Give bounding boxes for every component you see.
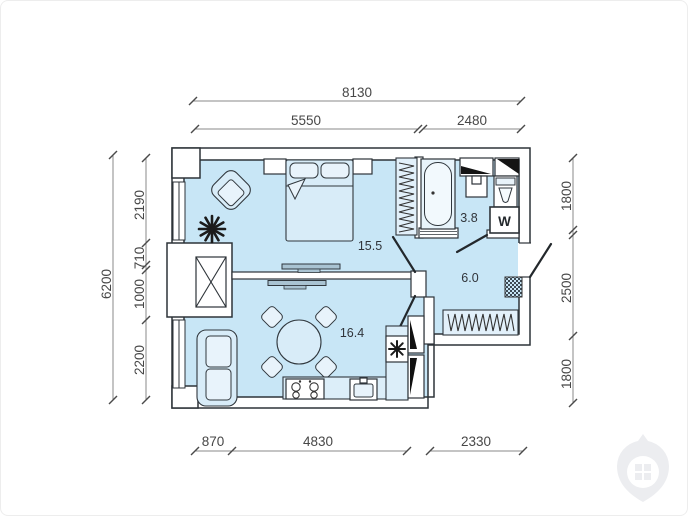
- kitchen-sink: [350, 378, 377, 400]
- shaft: [167, 243, 232, 317]
- toilet: [494, 176, 517, 207]
- dim-label: 5550: [291, 113, 321, 128]
- dim-label: 8130: [342, 85, 372, 100]
- dim-label: 870: [202, 434, 225, 449]
- sofa: [197, 330, 237, 406]
- dim-label: 2330: [461, 434, 491, 449]
- floor-plan: W: [0, 0, 688, 516]
- hallway-area-label: 6.0: [461, 271, 478, 285]
- dim-label: 4830: [303, 434, 333, 449]
- bath-cabinet: [460, 158, 493, 176]
- dim-label: 2480: [457, 113, 487, 128]
- dim-label: 1800: [559, 181, 574, 211]
- dim-label: 2200: [132, 345, 147, 375]
- bath-cabinet: [495, 158, 519, 176]
- partition-bedroom-living: [232, 272, 413, 279]
- tall-cabinet: [408, 355, 424, 398]
- entrance-door: [518, 243, 551, 277]
- fan-icon: [386, 336, 408, 362]
- fridge-cabinet: [408, 316, 424, 353]
- pillow: [321, 163, 349, 178]
- dim-label: 2500: [559, 273, 574, 303]
- doormat: [505, 277, 522, 297]
- dim-bottom-segments: 870 4830 2330: [191, 434, 527, 455]
- bedroom-area-label: 15.5: [358, 239, 382, 253]
- stove: [286, 379, 324, 399]
- wall-pier-bottomleft: [172, 386, 198, 408]
- living-window: [173, 320, 185, 388]
- bathroom-area-label: 3.8: [460, 211, 477, 225]
- dim-top-segments: 5550 2480: [191, 113, 525, 133]
- dim-left-overall: 6200: [99, 151, 117, 404]
- dim-label: 710: [132, 247, 147, 270]
- dim-label: 1800: [559, 359, 574, 389]
- bathroom-sink: [466, 176, 487, 197]
- dim-left-segments: 2190 710 1000 2200: [132, 154, 150, 404]
- pillow: [290, 163, 318, 178]
- brand-watermark-logo: [617, 434, 669, 502]
- washing-machine-label: W: [498, 214, 511, 229]
- apartment-plan: W: [167, 148, 551, 408]
- wall-hall-kitchen: [424, 297, 434, 344]
- wardrobe: [396, 158, 417, 235]
- wall-stub: [411, 271, 426, 297]
- bedroom-window: [173, 182, 185, 240]
- dim-top-overall: 8130: [189, 85, 525, 105]
- bathtub: [421, 159, 455, 229]
- hall-closet: [443, 310, 518, 335]
- dim-label: 2190: [132, 190, 147, 220]
- dim-label: 1000: [132, 279, 147, 309]
- nightstand-left: [264, 159, 286, 174]
- nightstand-right: [353, 159, 372, 174]
- dim-right-segments: 1800 2500 1800: [559, 154, 577, 407]
- washing-machine: W: [490, 207, 519, 233]
- dim-label: 6200: [99, 269, 114, 299]
- kitchen-living-area-label: 16.4: [340, 326, 364, 340]
- wall-pier-topleft: [172, 148, 200, 178]
